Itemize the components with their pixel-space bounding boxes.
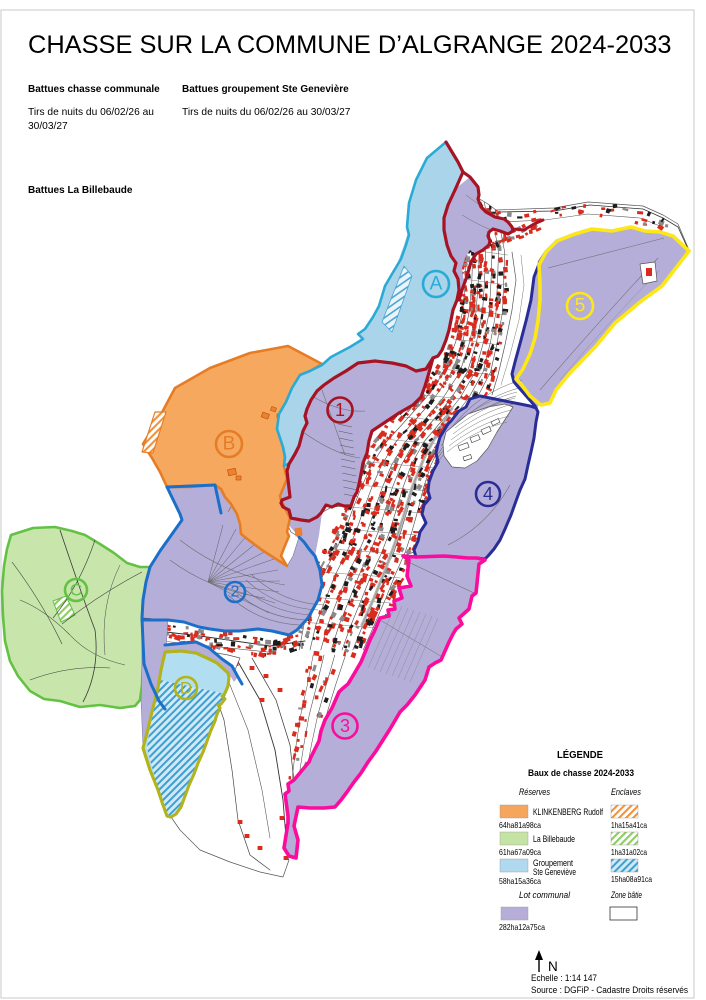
svg-text:Echelle : 1:14 147: Echelle : 1:14 147: [531, 973, 597, 983]
svg-text:Zone bâtie: Zone bâtie: [610, 890, 642, 901]
svg-text:Tirs de nuits du 06/02/26 au: Tirs de nuits du 06/02/26 au: [28, 107, 154, 118]
svg-text:N: N: [548, 959, 558, 974]
svg-text:Lot communal: Lot communal: [519, 890, 571, 901]
svg-text:282ha12a75ca: 282ha12a75ca: [499, 922, 545, 932]
svg-text:D: D: [180, 679, 192, 698]
svg-text:Tirs de nuits du 06/02/26 au 3: Tirs de nuits du 06/02/26 au 30/03/27: [182, 107, 351, 118]
svg-text:1ha15a41ca: 1ha15a41ca: [611, 820, 647, 830]
svg-text:CHASSE SUR LA COMMUNE D’ALGRAN: CHASSE SUR LA COMMUNE D’ALGRANGE 2024-20…: [28, 31, 671, 59]
svg-text:Réserves: Réserves: [519, 787, 550, 798]
svg-text:61ha67a09ca: 61ha67a09ca: [499, 847, 541, 857]
svg-text:Enclaves: Enclaves: [611, 787, 641, 798]
svg-text:2: 2: [231, 584, 240, 601]
svg-text:Source : DGFiP - Cadastre Droi: Source : DGFiP - Cadastre Droits réservé…: [531, 985, 689, 995]
svg-text:Battues chasse communale: Battues chasse communale: [28, 84, 160, 95]
svg-text:3: 3: [340, 716, 350, 736]
svg-text:1ha31a02ca: 1ha31a02ca: [611, 847, 647, 857]
svg-text:A: A: [430, 274, 443, 295]
svg-text:B: B: [223, 434, 236, 455]
svg-text:64ha81a98ca: 64ha81a98ca: [499, 820, 541, 830]
svg-text:Baux de chasse 2024-2033: Baux de chasse 2024-2033: [528, 768, 634, 779]
svg-text:Battues groupement Ste Geneviè: Battues groupement Ste Genevière: [182, 84, 349, 95]
svg-text:5: 5: [575, 296, 586, 317]
svg-text:Battues La Billebaude: Battues La Billebaude: [28, 185, 133, 196]
svg-text:15ha08a91ca: 15ha08a91ca: [611, 874, 652, 884]
svg-text:1: 1: [335, 400, 345, 420]
svg-text:C: C: [70, 581, 82, 600]
svg-text:LÉGENDE: LÉGENDE: [557, 748, 603, 761]
svg-text:4: 4: [483, 484, 493, 504]
svg-text:KLINKENBERG Rudolf: KLINKENBERG Rudolf: [533, 807, 603, 817]
svg-text:58ha15a36ca: 58ha15a36ca: [499, 876, 541, 886]
svg-text:30/03/27: 30/03/27: [28, 121, 68, 132]
svg-text:La Billebaude: La Billebaude: [533, 834, 575, 844]
